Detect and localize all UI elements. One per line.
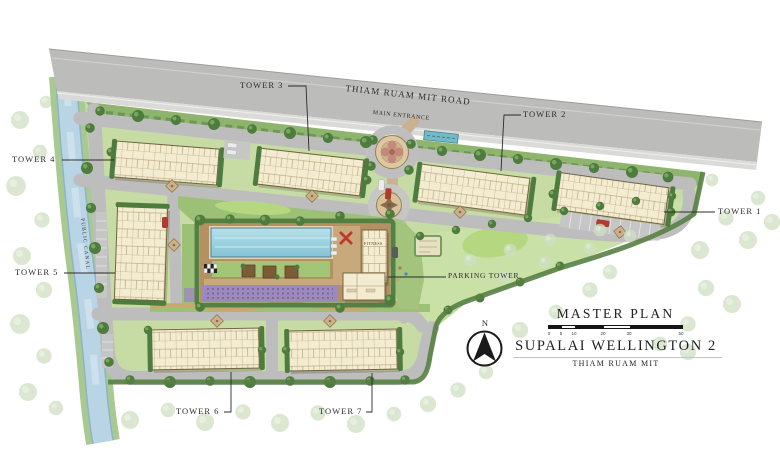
pergolas xyxy=(242,265,298,278)
scale-tick: 50 xyxy=(678,331,683,336)
master-plan-canvas: THIAM RUAM MIT ROAD MAIN ENTRANCE TOWER … xyxy=(0,0,780,460)
white-car xyxy=(378,180,385,191)
scale-tick: 20 xyxy=(600,331,605,336)
label-tower-7: TOWER 7 xyxy=(319,407,362,416)
red-car xyxy=(385,188,392,199)
label-tower-1: TOWER 1 xyxy=(718,207,761,216)
north-label: N xyxy=(477,318,493,328)
scale-tick: 10 xyxy=(571,331,576,336)
tower-5-building xyxy=(112,202,170,306)
scale-tick: 0 xyxy=(548,331,551,336)
site-plan-illustration xyxy=(0,0,780,460)
label-fitness: FITNESS xyxy=(364,242,383,246)
divider xyxy=(513,357,722,358)
plan-title: MASTER PLAN xyxy=(523,307,708,321)
label-tower-2: TOWER 2 xyxy=(523,110,566,119)
gray-car xyxy=(392,247,398,258)
scale-tick: 5 xyxy=(560,331,563,336)
label-tower-6: TOWER 6 xyxy=(176,407,219,416)
label-parking-tower: PARKING TOWER xyxy=(448,272,519,280)
project-location: THIAM RUAM MIT xyxy=(505,360,727,368)
parking-tower-building xyxy=(343,273,387,303)
scale-bar: 0 5 10 20 30 50 xyxy=(548,323,683,337)
tower-7-building xyxy=(284,327,403,374)
scale-tick: 30 xyxy=(626,331,631,336)
red-car xyxy=(162,217,168,228)
north-arrow-icon xyxy=(464,328,505,369)
label-tower-5: TOWER 5 xyxy=(15,268,58,277)
tower-6-building xyxy=(147,326,265,373)
lavender-garden xyxy=(202,285,338,302)
scale-bar-segments xyxy=(548,325,683,329)
swimming-pool xyxy=(209,226,333,259)
label-tower-4: TOWER 4 xyxy=(12,155,55,164)
label-tower-3: TOWER 3 xyxy=(240,81,283,90)
entrance-roundabout xyxy=(366,130,416,175)
sun-deck-checker xyxy=(204,264,217,273)
project-name: SUPALAI WELLINGTON 2 xyxy=(505,339,727,354)
pool-chairs xyxy=(331,237,337,255)
